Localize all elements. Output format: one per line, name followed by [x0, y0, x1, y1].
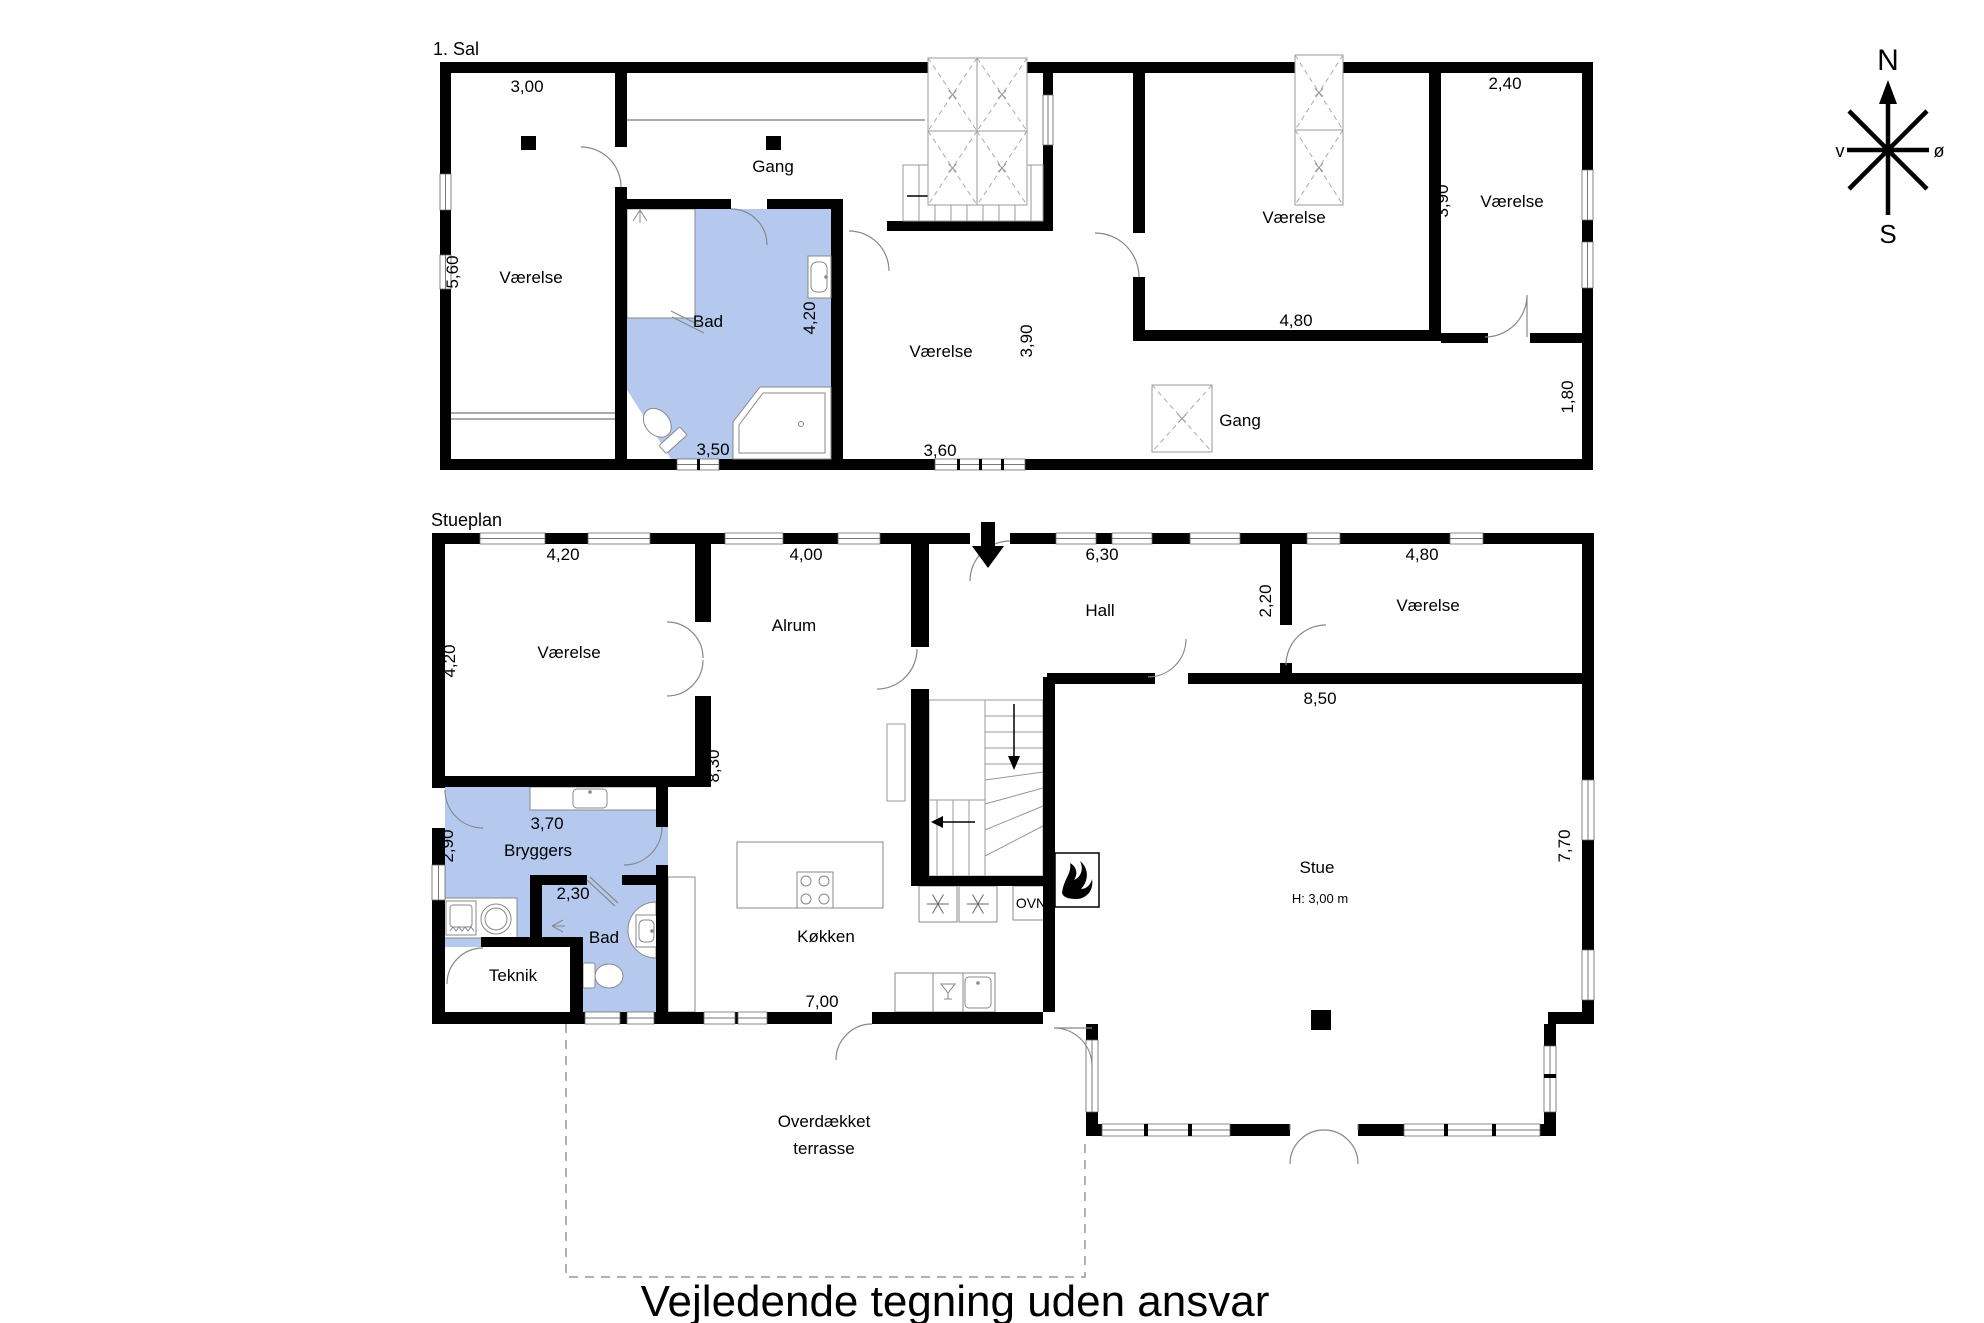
stairs-icon	[887, 700, 1043, 876]
room-label: Bad	[693, 312, 723, 331]
dimension-label: 4,80	[1279, 311, 1312, 330]
room-label: Teknik	[489, 966, 538, 985]
dimension-label: 2,90	[438, 829, 457, 862]
sink-icon	[636, 915, 657, 947]
floor-title: Stueplan	[431, 510, 502, 530]
room-label: Værelse	[1262, 208, 1325, 227]
dryer-icon	[481, 904, 511, 934]
oven-label: OVN	[1016, 895, 1046, 911]
washer-icon	[446, 901, 476, 935]
disclaimer-text: Vejledende tegning uden ansvar	[641, 1277, 1270, 1323]
compass-north-label: N	[1877, 44, 1899, 77]
room-label: Bad	[589, 928, 619, 947]
counter	[895, 973, 995, 1012]
room-label: Hall	[1085, 601, 1114, 620]
room-label: Værelse	[1396, 596, 1459, 615]
dimension-label: 3,90	[1017, 324, 1036, 357]
room-label: Værelse	[499, 268, 562, 287]
stair-arrow-head	[1008, 756, 1020, 770]
dimension-label: 1,80	[1558, 380, 1577, 413]
toilet-icon	[583, 963, 623, 988]
dimension-label: 6,30	[1085, 545, 1118, 564]
room-label: Stue	[1300, 858, 1335, 877]
cabinet	[668, 877, 695, 1012]
room-label: Gang	[752, 157, 794, 176]
dimension-label: 7,00	[805, 992, 838, 1011]
dimension-label: 2,30	[556, 884, 589, 903]
dimension-label: 2,40	[1488, 74, 1521, 93]
compass-rose: N S v ø	[1836, 44, 1945, 249]
dimension-label: 3,00	[510, 77, 543, 96]
shower-enclosure	[627, 209, 695, 318]
room-height-label: H: 3,00 m	[1292, 891, 1348, 906]
fireplace-icon	[1055, 853, 1099, 907]
compass-north-arrow	[1879, 80, 1897, 104]
dimension-label: 3,70	[530, 814, 563, 833]
dimension-label: 3,50	[696, 440, 729, 459]
room-label: Værelse	[537, 643, 600, 662]
room-label: Gang	[1219, 411, 1261, 430]
floorplan-drawing: 1. Sal 3,00 5,60 Værelse Gang Bad 4,20 3…	[0, 0, 1984, 1323]
stair-tread	[929, 700, 1043, 876]
dimension-label: 8,50	[1303, 689, 1336, 708]
dimension-label: 4,20	[800, 301, 819, 334]
freezer-icon	[919, 886, 997, 922]
dimension-label: 4,20	[440, 644, 459, 677]
dimension-label: 3,90	[1433, 184, 1452, 217]
room-label: Værelse	[909, 342, 972, 361]
stair-rail	[887, 724, 905, 801]
kitchen-island	[737, 842, 883, 908]
dimension-label: 5,60	[443, 255, 462, 288]
floorplan-page: 1. Sal 3,00 5,60 Værelse Gang Bad 4,20 3…	[0, 0, 1984, 1323]
room-label: Køkken	[797, 927, 855, 946]
room-label: Bryggers	[504, 841, 572, 860]
ground-floor-plan: Stueplan 4,20 4,00 6,30 4,80 4,20 Værels…	[431, 510, 1594, 1277]
sink-icon	[808, 256, 831, 298]
chimney-square	[521, 136, 781, 150]
entrance-arrow-icon	[972, 522, 1004, 568]
compass-arms	[1847, 100, 1929, 215]
terrace-label: terrasse	[793, 1139, 854, 1158]
dimension-label: 3,60	[923, 441, 956, 460]
dimension-label: 2,20	[1256, 584, 1275, 617]
room-label: Alrum	[772, 616, 816, 635]
dimension-label: 4,00	[789, 545, 822, 564]
door-opening	[970, 533, 1358, 1136]
room-label: Værelse	[1480, 192, 1543, 211]
dimension-label: 4,80	[1405, 545, 1438, 564]
terrace-label: Overdækket	[778, 1112, 871, 1131]
dimension-label: 7,70	[1555, 829, 1574, 862]
compass-west-label: v	[1836, 141, 1845, 161]
floor-title: 1. Sal	[433, 39, 479, 59]
dimension-label: 8,30	[704, 749, 723, 782]
compass-east-label: ø	[1934, 141, 1945, 161]
compass-south-label: S	[1879, 219, 1896, 249]
dimension-label: 4,20	[546, 545, 579, 564]
first-floor-plan: 1. Sal 3,00 5,60 Værelse Gang Bad 4,20 3…	[433, 39, 1593, 470]
sink-icon	[573, 789, 607, 808]
